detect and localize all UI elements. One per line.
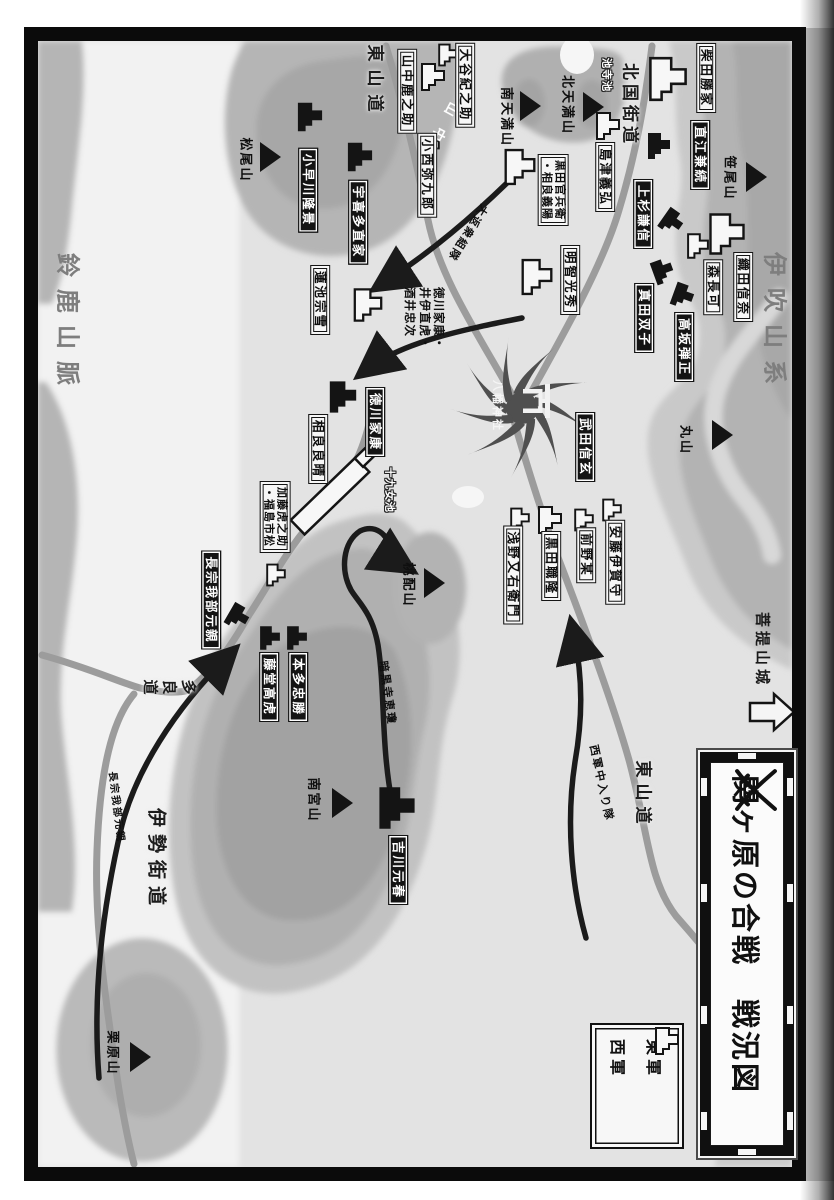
unit-box-otani: 大谷紀之助 <box>455 43 475 128</box>
unit-box-takeda: 武田信玄 <box>575 412 595 482</box>
unit-box-honda: 本多忠勝 <box>288 652 308 722</box>
tokugawa-group-line: 徳川家康・ <box>431 287 445 350</box>
pond-label-tsuzura: 十九女池 <box>383 467 398 513</box>
road-label-tara: 多良道 <box>140 676 197 697</box>
unit-box-naoe: 直江兼続 <box>690 120 710 190</box>
unit-box-shimazu: 島津義弘 <box>595 142 615 212</box>
title-banner: 関ヶ原の合戦 戦況図 <box>700 752 794 1156</box>
unit-box-line: 加藤虎之助 <box>275 487 288 547</box>
shrine-label: 八幡神社 <box>490 380 506 432</box>
range-label-ibuki: 伊吹山系 <box>760 252 795 396</box>
legend: 東軍 西軍 <box>590 1023 684 1149</box>
unit-box-kuroda-sagara: 黒田官兵衛 ・相良義陽 <box>537 154 568 226</box>
castle-icon-white <box>654 1025 682 1057</box>
unit-box-chosokabe: 長宗我部元親 <box>201 550 221 649</box>
unit-box-kato-fukushima: 加藤虎之助 ・福島市松 <box>259 481 290 553</box>
map-labels: 鈴鹿山脈 伊吹山系 東山道 北国街道 東山道 伊勢街道 多良道 池寺池 十九女池… <box>0 0 834 1200</box>
sekigahara-map: 鈴鹿山脈 伊吹山系 東山道 北国街道 東山道 伊勢街道 多良道 池寺池 十九女池… <box>0 0 834 1200</box>
bodai-castle-label: 菩提山城 <box>753 612 774 688</box>
unit-box-konishi: 小西弥九郎 <box>417 133 437 218</box>
unit-box-kosaka: 高坂弾正 <box>674 312 694 382</box>
unit-box-ando: 安藤伊賀守 <box>605 520 625 605</box>
unit-box-kuroda-mototaka: 黒田職隆 <box>541 531 561 601</box>
pond-label-ikedera: 池寺池 <box>600 58 615 93</box>
legend-west-label: 西軍 <box>607 1039 631 1079</box>
unit-box-kobayakawa: 小早川隆景 <box>298 148 318 233</box>
mountain-label-kita-tenman: 北天満山 <box>560 75 579 135</box>
mountain-label-minami-tenman: 南天満山 <box>499 87 518 147</box>
legend-row-west: 西軍 <box>607 1039 631 1137</box>
mountain-label-momokubari: 桃配山 <box>401 562 420 607</box>
unit-box-asano: 浅野又右衛門 <box>503 525 523 624</box>
unit-box-shibata: 柴田勝家 <box>696 43 716 113</box>
scanned-map-page: 鈴鹿山脈 伊吹山系 東山道 北国街道 東山道 伊勢街道 多良道 池寺池 十九女池… <box>0 0 834 1200</box>
road-label-ise: 伊勢街道 <box>145 808 172 912</box>
range-label-suzuka: 鈴鹿山脈 <box>53 253 88 397</box>
unit-box-yamanaka: 山中鹿之助 <box>397 49 417 134</box>
tokugawa-group-line: 井伊直虎・ <box>416 287 430 350</box>
unit-box-line: 黒田官兵衛 <box>553 160 566 220</box>
unit-box-oda-nobuna: 織田信奈 <box>733 252 753 322</box>
mountain-label-kurihara: 栗原山 <box>105 1030 124 1075</box>
unit-box-sanada: 真田双子 <box>634 283 654 353</box>
movement-label-ogaeshi: 大返衆組隊 <box>444 201 492 265</box>
unit-box-sagara: 相良良晴 <box>308 414 328 484</box>
unit-box-ukita: 宇喜多直家 <box>348 180 368 265</box>
crossed-swords-icon <box>729 763 783 817</box>
road-label-hokkoku: 北国街道 <box>620 63 645 147</box>
title-banner-inner: 関ヶ原の合戦 戦況図 <box>710 762 784 1146</box>
road-label-tosando-west: 東山道 <box>365 45 390 120</box>
mountain-label-maru: 丸山 <box>678 425 697 455</box>
unit-box-todo: 藤堂高虎 <box>259 652 279 722</box>
mountain-label-sasao: 笹尾山 <box>722 155 741 200</box>
tokugawa-group-line: 酒井忠次 <box>402 287 416 350</box>
unit-box-line: ・相良義陽 <box>540 160 553 220</box>
road-label-tosando-east: 東山道 <box>633 761 658 830</box>
movement-label-nakairi: 西軍中入り隊 <box>586 743 618 823</box>
mountain-label-nangu: 南宮山 <box>306 777 325 822</box>
unit-box-uesugi: 上杉謙信 <box>633 179 653 249</box>
unit-box-kikkawa: 吉川元春 <box>388 835 408 905</box>
movement-label-chosokabe: 長宗我部元親 <box>106 770 130 843</box>
mountain-label-matsuo: 松尾山 <box>238 137 257 182</box>
unit-box-tokugawa: 徳川家康 <box>365 387 385 457</box>
unit-box-line: ・福島市松 <box>262 487 275 547</box>
movement-label-ankokuji: 暗黒寺恵瓊 <box>376 660 401 727</box>
unit-box-akechi: 明智光秀 <box>560 245 580 315</box>
unit-box-hasuike: 蓮池宗雪 <box>310 265 330 335</box>
unit-box-maeno: 前野某 <box>576 527 596 583</box>
map-title: 関ヶ原の合戦 戦況図 <box>726 775 768 1095</box>
tokugawa-group-label: 徳川家康・ 井伊直虎・ 酒井忠次 <box>402 287 445 350</box>
unit-box-mori: 森長可 <box>703 259 723 315</box>
